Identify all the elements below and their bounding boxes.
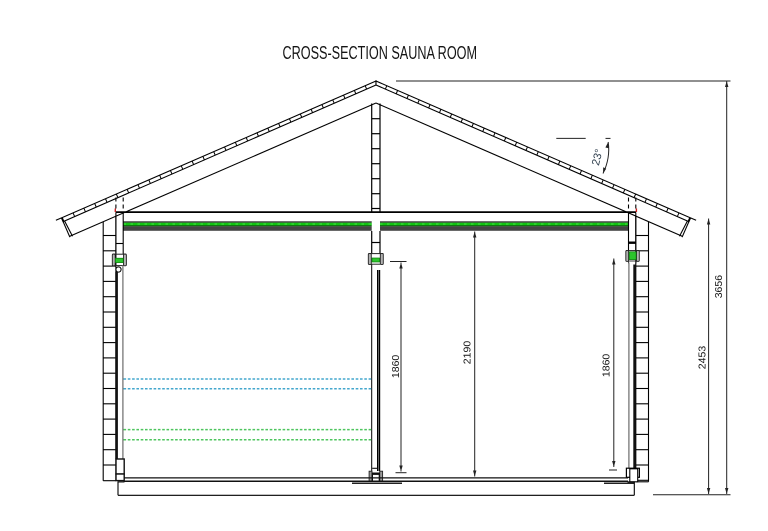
svg-text:1860: 1860 xyxy=(390,355,402,379)
svg-text:2190: 2190 xyxy=(461,341,473,365)
svg-text:1860: 1860 xyxy=(601,354,613,378)
svg-text:CROSS-SECTION SAUNA ROOM: CROSS-SECTION SAUNA ROOM xyxy=(283,43,478,63)
svg-text:2453: 2453 xyxy=(697,346,709,370)
svg-text:23°: 23° xyxy=(590,148,606,167)
svg-text:3656: 3656 xyxy=(713,275,725,299)
